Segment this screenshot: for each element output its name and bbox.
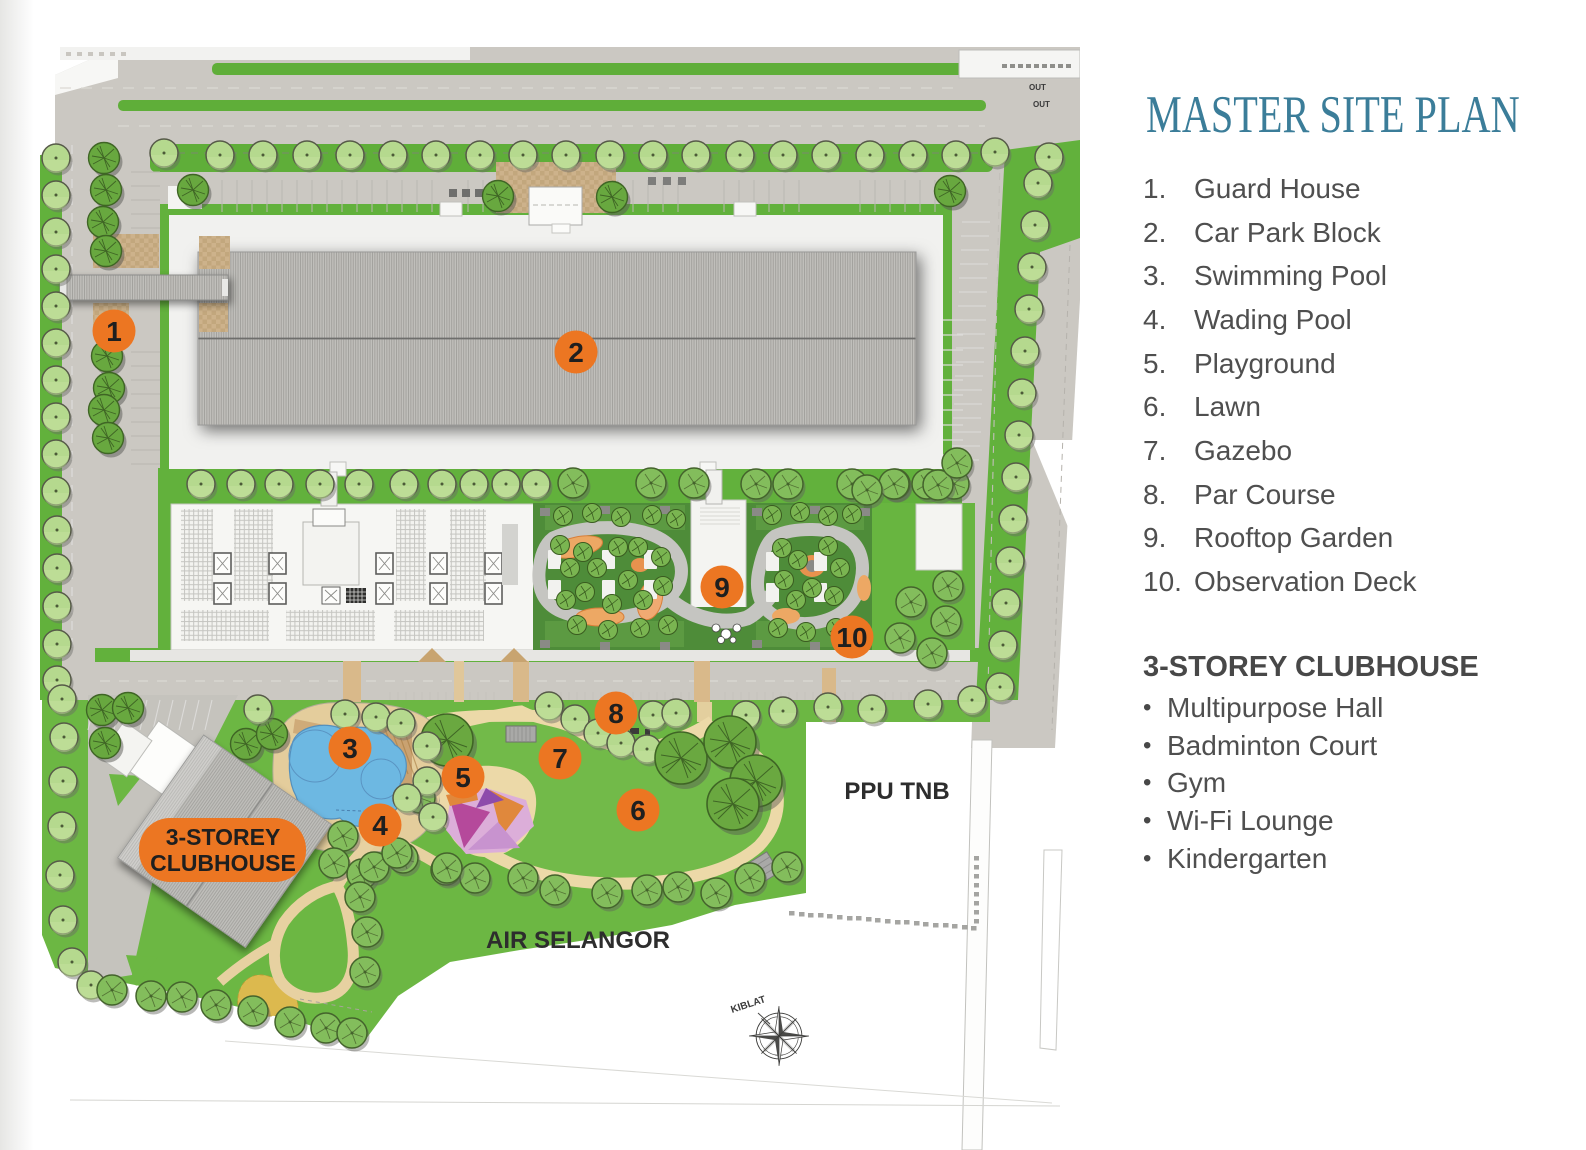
svg-text:6: 6 [630, 795, 646, 826]
svg-text:7: 7 [552, 743, 568, 774]
svg-text:10: 10 [836, 622, 867, 653]
svg-text:PPU TNB: PPU TNB [844, 778, 949, 805]
svg-text:1: 1 [106, 316, 122, 347]
svg-text:CLUBHOUSE: CLUBHOUSE [150, 850, 296, 876]
svg-text:3: 3 [342, 733, 358, 764]
svg-text:OUT: OUT [1033, 100, 1050, 109]
svg-text:8: 8 [608, 698, 624, 729]
svg-text:2: 2 [568, 337, 584, 368]
svg-text:3-STOREY: 3-STOREY [166, 824, 281, 850]
svg-text:9: 9 [714, 572, 730, 603]
svg-text:AIR SELANGOR: AIR SELANGOR [486, 927, 670, 954]
svg-text:4: 4 [372, 810, 388, 841]
svg-text:OUT: OUT [1029, 83, 1046, 92]
svg-text:5: 5 [455, 762, 471, 793]
